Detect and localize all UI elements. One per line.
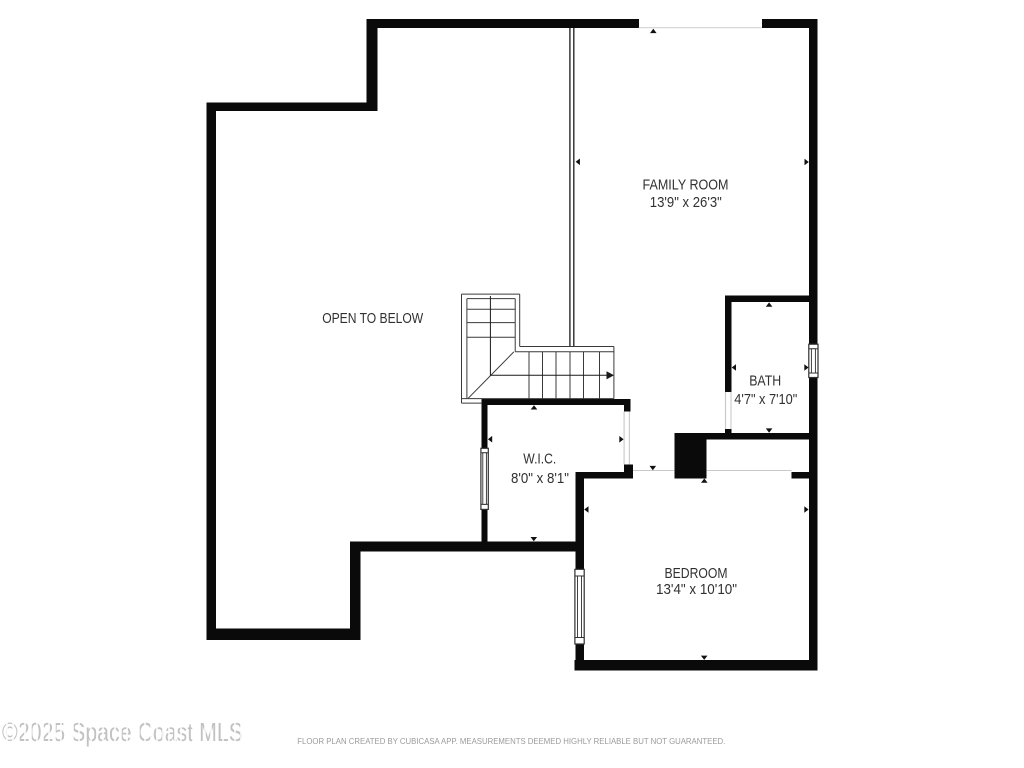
svg-text:13'9" x 26'3": 13'9" x 26'3" bbox=[650, 194, 722, 211]
svg-text:OPEN TO BELOW: OPEN TO BELOW bbox=[322, 310, 424, 327]
svg-text:13'4" x 10'10": 13'4" x 10'10" bbox=[656, 581, 737, 598]
svg-text:W.I.C.: W.I.C. bbox=[523, 450, 556, 467]
svg-text:BATH: BATH bbox=[749, 373, 781, 390]
svg-text:4'7" x 7'10": 4'7" x 7'10" bbox=[734, 391, 797, 408]
svg-text:FLOOR PLAN CREATED BY CUBICASA: FLOOR PLAN CREATED BY CUBICASA APP. MEAS… bbox=[297, 736, 725, 746]
svg-text:©2025 Space Coast MLS: ©2025 Space Coast MLS bbox=[2, 719, 243, 747]
svg-text:8'0" x 8'1": 8'0" x 8'1" bbox=[511, 470, 569, 487]
svg-text:FAMILY ROOM: FAMILY ROOM bbox=[643, 177, 729, 194]
svg-text:BEDROOM: BEDROOM bbox=[665, 565, 728, 582]
